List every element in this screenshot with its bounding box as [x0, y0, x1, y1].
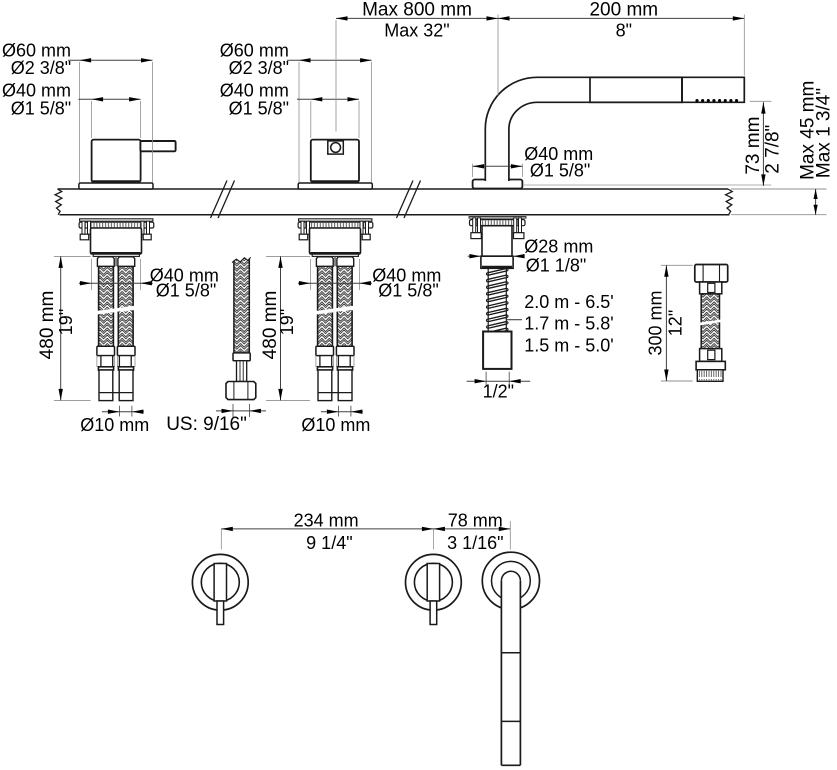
- svg-text:300 mm: 300 mm: [646, 290, 666, 355]
- svg-text:1.5 m - 5.0': 1.5 m - 5.0': [524, 335, 613, 355]
- svg-text:Ø10 mm: Ø10 mm: [301, 415, 370, 435]
- svg-text:US: 9/16": US: 9/16": [166, 414, 247, 435]
- svg-text:234 mm: 234 mm: [294, 510, 359, 530]
- svg-text:Max 32": Max 32": [384, 20, 449, 40]
- svg-text:3 1/16": 3 1/16": [447, 533, 503, 553]
- svg-text:Ø1 1/8": Ø1 1/8": [526, 255, 586, 275]
- svg-text:Ø1 5/8": Ø1 5/8": [378, 281, 438, 301]
- svg-text:Ø2 3/8": Ø2 3/8": [229, 58, 289, 78]
- svg-text:Max 800 mm: Max 800 mm: [362, 0, 472, 20]
- svg-text:Ø1 5/8": Ø1 5/8": [156, 281, 216, 301]
- svg-text:Ø28 mm: Ø28 mm: [524, 236, 593, 256]
- svg-text:2.0 m - 6.5': 2.0 m - 6.5': [524, 292, 613, 312]
- svg-text:78 mm: 78 mm: [448, 510, 503, 530]
- svg-text:1.7 m - 5.8': 1.7 m - 5.8': [524, 314, 613, 334]
- svg-text:Ø1 5/8": Ø1 5/8": [229, 98, 289, 118]
- svg-text:73 mm: 73 mm: [743, 117, 764, 175]
- svg-text:Max 1 3/4": Max 1 3/4": [814, 88, 835, 178]
- svg-text:12": 12": [666, 310, 686, 336]
- svg-text:Ø10 mm: Ø10 mm: [80, 415, 149, 435]
- svg-text:2 7/8": 2 7/8": [763, 125, 784, 174]
- svg-text:9 1/4": 9 1/4": [306, 533, 352, 553]
- svg-text:1/2": 1/2": [483, 381, 514, 401]
- svg-text:19": 19": [277, 309, 297, 335]
- svg-text:8": 8": [616, 20, 632, 40]
- svg-text:19": 19": [56, 309, 76, 335]
- svg-text:200 mm: 200 mm: [589, 0, 658, 20]
- svg-text:480 mm: 480 mm: [37, 291, 58, 360]
- svg-text:Ø1 5/8": Ø1 5/8": [11, 98, 71, 118]
- svg-text:Ø2 3/8": Ø2 3/8": [11, 58, 71, 78]
- svg-text:Ø1 5/8": Ø1 5/8": [530, 161, 590, 181]
